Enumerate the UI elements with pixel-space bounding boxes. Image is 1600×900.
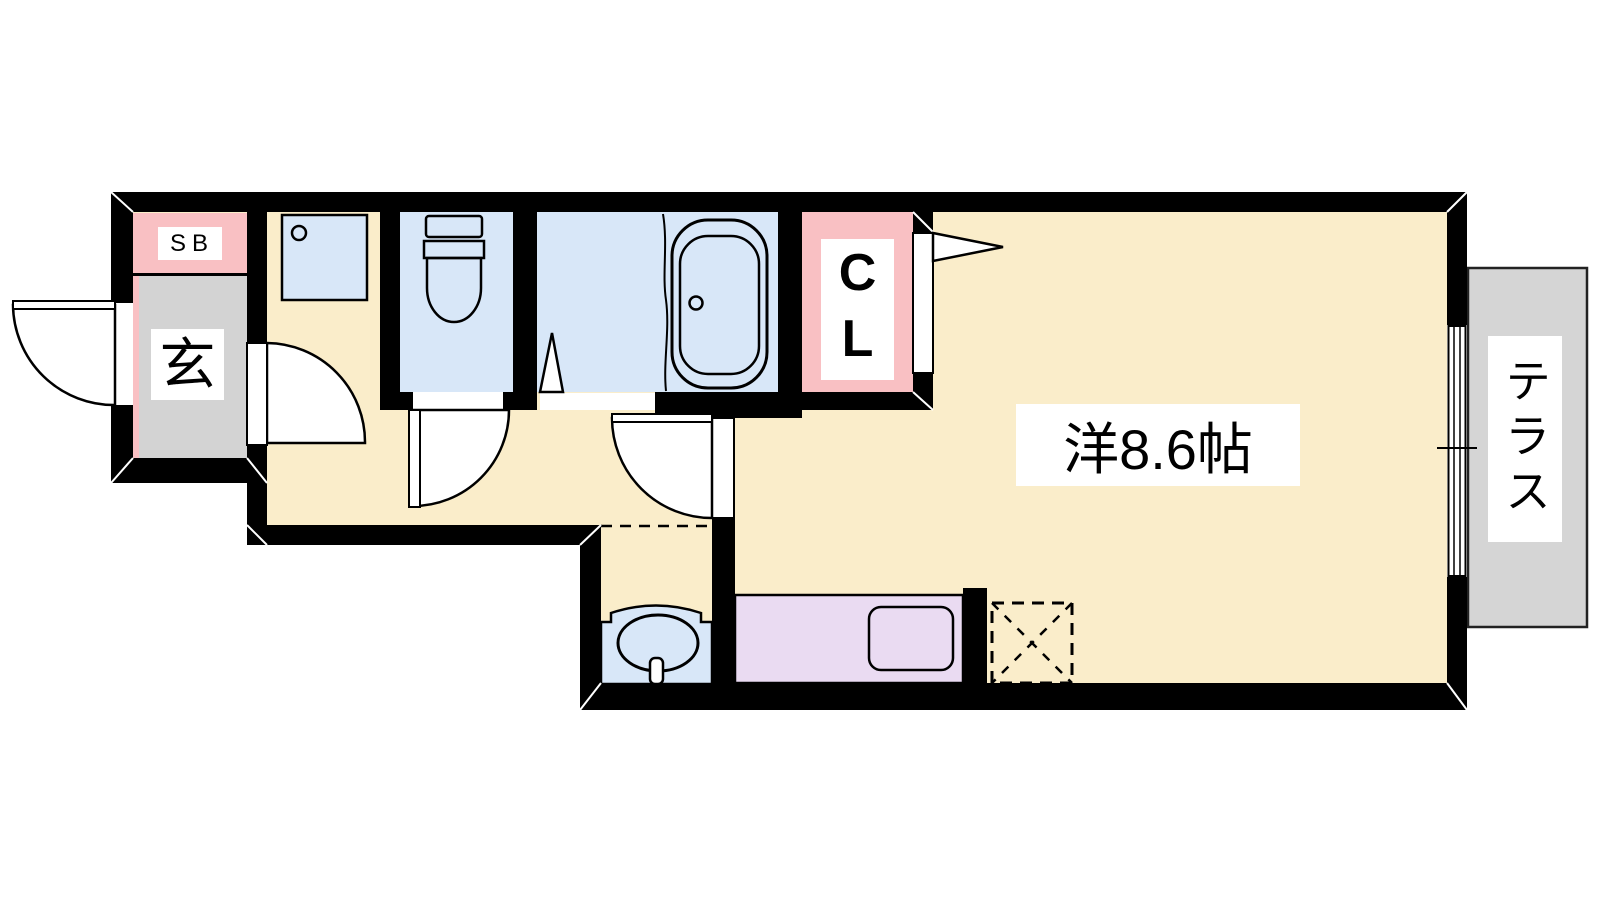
bathroom-door-opening [540, 393, 655, 410]
floor-plan-drawing [0, 0, 1600, 900]
entrance-door-swing [13, 301, 115, 405]
toilet-door-opening [413, 392, 503, 410]
closet-label: CL [821, 239, 894, 380]
entrance-pink-strip [133, 276, 139, 458]
shoebox-label: SB [158, 227, 222, 260]
closet-door [913, 233, 933, 373]
entrance-label: 玄 [151, 329, 224, 400]
toilet-room [400, 212, 513, 392]
floor-plan: SB 玄 CL 洋8.6帖 テラス [0, 0, 1600, 900]
shoebox-divider [133, 273, 247, 276]
terrace-label: テラス [1488, 336, 1562, 542]
main-room-label: 洋8.6帖 [1016, 404, 1300, 486]
washing-machine-pan-icon [282, 215, 367, 300]
